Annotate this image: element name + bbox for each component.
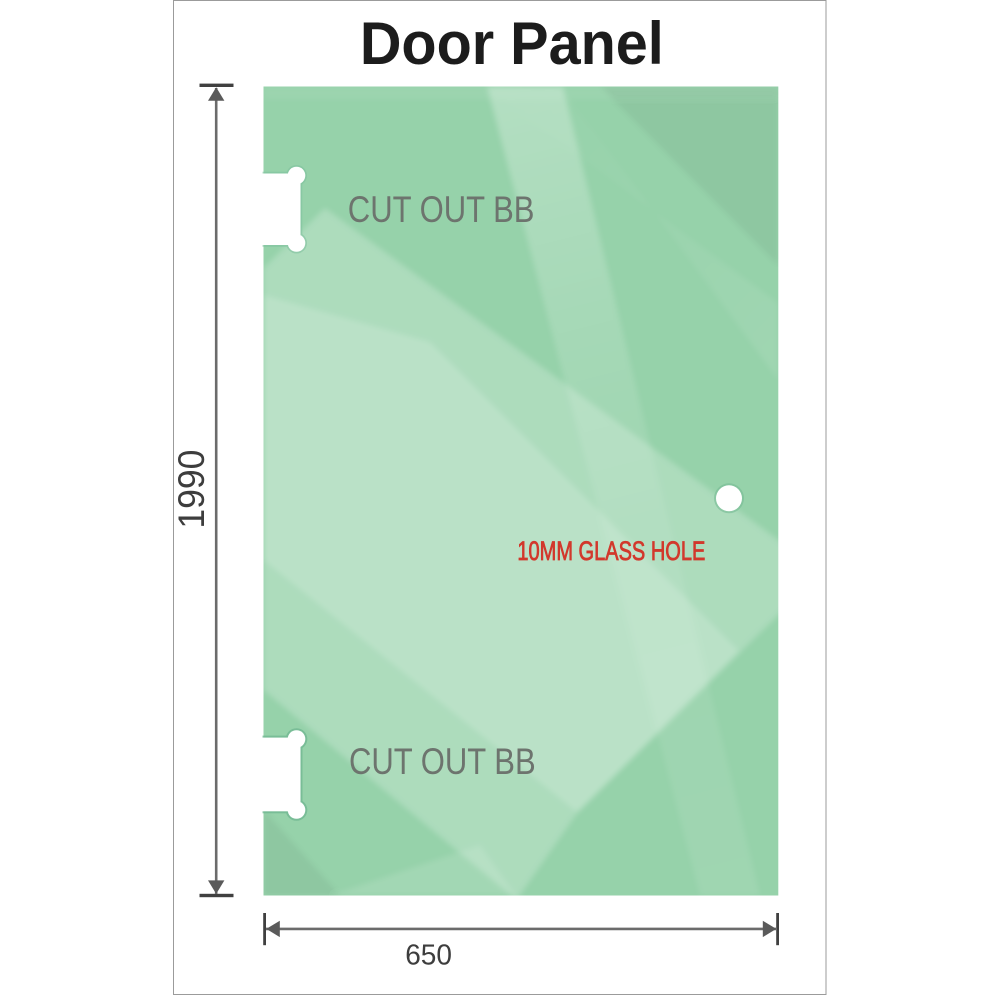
svg-text:CUT OUT BB: CUT OUT BB [348,189,535,230]
svg-text:CUT OUT BB: CUT OUT BB [349,742,536,783]
svg-text:Door Panel: Door Panel [360,10,664,78]
svg-text:650: 650 [405,939,452,972]
svg-text:1990: 1990 [170,450,212,529]
svg-text:10MM GLASS HOLE: 10MM GLASS HOLE [517,536,705,567]
